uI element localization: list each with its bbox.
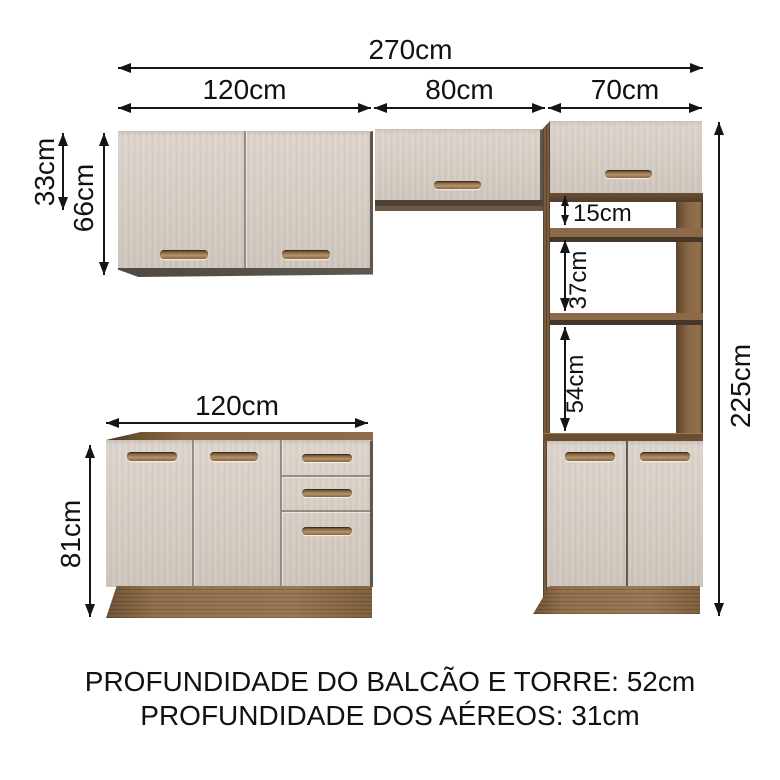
dim-base-width-arrow bbox=[106, 422, 368, 424]
base-cabinet-door-gap-1 bbox=[192, 440, 194, 586]
upper-left-cabinet-underside bbox=[118, 268, 373, 277]
kitchen-cabinet-dimensions-diagram: 270cm 120cm 80cm 70cm 33cm 66cm 225cm 15… bbox=[0, 0, 780, 780]
dim-tower-top-gap-arrow bbox=[564, 196, 566, 225]
tower-shelf-upper bbox=[550, 228, 703, 242]
upper-middle-cabinet-face bbox=[375, 129, 543, 201]
dim-upper-left-height-label: 66cm bbox=[68, 164, 100, 232]
base-cabinet-door-gap-2 bbox=[280, 440, 282, 586]
tower-top-door bbox=[550, 121, 702, 194]
dim-base-height-label: 81cm bbox=[55, 500, 87, 568]
dim-base-width-label: 120cm bbox=[106, 390, 368, 422]
dim-tower-middle-gap-label: 37cm bbox=[565, 251, 593, 310]
depth-note-aereos: PROFUNDIDADE DOS AÉREOS: 31cm bbox=[0, 700, 780, 732]
base-cabinet-middle-door-handle bbox=[210, 452, 258, 461]
base-cabinet-plinth bbox=[106, 586, 372, 618]
dim-total-width-label: 270cm bbox=[118, 34, 703, 66]
depth-note-balcao-tower: PROFUNDIDADE DO BALCÃO E TORRE: 52cm bbox=[0, 666, 780, 698]
tower-lower-left-door-handle bbox=[565, 452, 615, 461]
dim-tower-width-label: 70cm bbox=[548, 74, 702, 106]
tower-plinth bbox=[533, 586, 700, 614]
dim-upper-middle-height-arrow bbox=[62, 133, 64, 210]
dim-base-height-arrow bbox=[89, 445, 91, 617]
base-cabinet-drawer-1-handle bbox=[302, 454, 352, 462]
dim-upper-middle-width-arrow bbox=[374, 107, 545, 109]
tower-lower-right-door-handle bbox=[640, 452, 690, 461]
dim-tower-height-arrow bbox=[718, 122, 720, 616]
upper-left-cabinet-right-door-handle bbox=[282, 250, 330, 259]
base-cabinet-face bbox=[106, 440, 373, 587]
tower-lower-right-door bbox=[628, 441, 703, 587]
dim-upper-left-width-label: 120cm bbox=[118, 74, 371, 106]
dim-tower-width-arrow bbox=[548, 107, 702, 109]
tower-lower-left-door bbox=[547, 441, 626, 587]
dim-upper-middle-height-label: 33cm bbox=[29, 138, 61, 206]
dim-tower-bottom-gap-label: 54cm bbox=[562, 355, 590, 414]
base-cabinet-top-panel bbox=[106, 432, 373, 440]
dim-upper-left-height-arrow bbox=[103, 133, 105, 275]
base-cabinet-drawer-divider-1 bbox=[282, 475, 370, 477]
tower-top-door-handle bbox=[605, 170, 652, 178]
base-cabinet-drawer-3-handle bbox=[302, 527, 352, 535]
base-cabinet-left-door-handle bbox=[127, 452, 177, 461]
upper-middle-cabinet-underside bbox=[375, 200, 543, 211]
upper-left-cabinet-left-door-handle bbox=[160, 250, 208, 259]
dim-upper-middle-width-label: 80cm bbox=[374, 74, 545, 106]
tower-shelf-lower bbox=[550, 313, 703, 325]
dim-total-width-arrow bbox=[118, 67, 703, 69]
dim-tower-top-gap-label: 15cm bbox=[573, 200, 643, 228]
dim-tower-height-label: 225cm bbox=[725, 344, 757, 428]
base-cabinet-drawer-2-handle bbox=[302, 489, 352, 497]
upper-left-cabinet-door-gap bbox=[244, 131, 246, 268]
upper-middle-cabinet-handle bbox=[434, 181, 481, 189]
base-cabinet-drawer-divider-2 bbox=[282, 510, 370, 512]
dim-upper-left-width-arrow bbox=[118, 107, 371, 109]
